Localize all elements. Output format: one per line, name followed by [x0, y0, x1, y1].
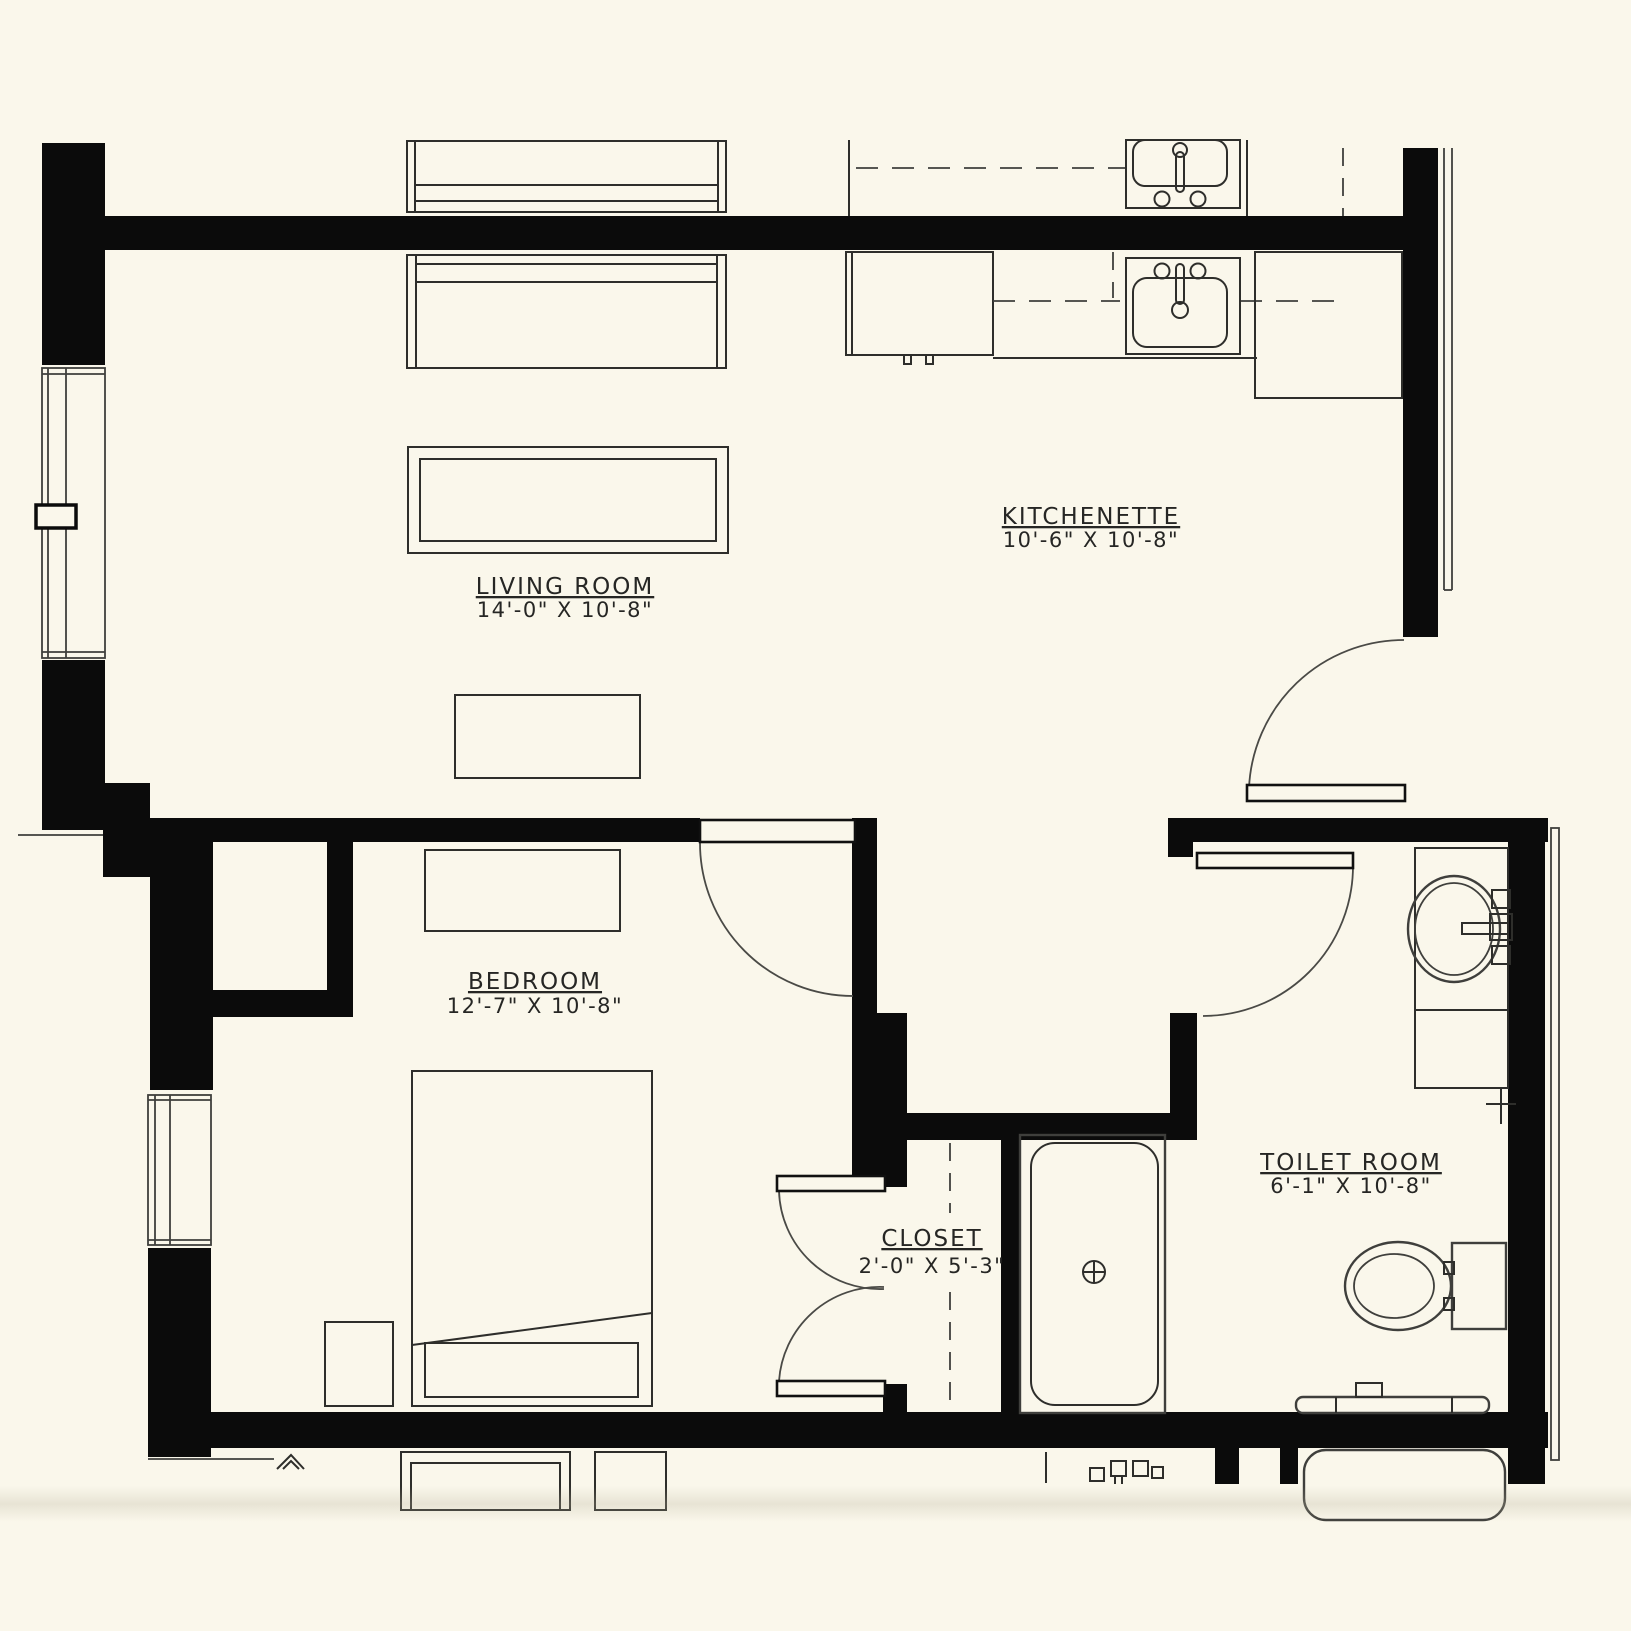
toilet — [1345, 1242, 1506, 1330]
wall-notch-bottom — [213, 990, 353, 1017]
bedroom-dims: 12'-7" X 10'-8" — [447, 994, 623, 1018]
wall-right-toilet — [1508, 818, 1545, 1484]
kitchenette-dims: 10'-6" X 10'-8" — [1003, 528, 1179, 552]
toilet-room-door — [1197, 853, 1353, 1016]
wall-closet-left — [852, 1013, 907, 1187]
wall-right-kitchen — [1403, 148, 1438, 637]
bed — [412, 1071, 652, 1406]
dishwasher — [846, 252, 993, 364]
room-labels: LIVING ROOM 14'-0" X 10'-8" KITCHENETTE … — [447, 504, 1442, 1278]
floor-plan: LIVING ROOM 14'-0" X 10'-8" KITCHENETTE … — [0, 0, 1631, 1631]
wall-bottom-band — [211, 1412, 1548, 1448]
wall-left-upper — [42, 143, 105, 365]
wall-hall-top — [1168, 818, 1548, 842]
exterior-trim — [18, 148, 1559, 1460]
window-mullion — [36, 505, 76, 528]
wall-top-band — [42, 216, 1403, 250]
toilet-room-dims: 6'-1" X 10'-8" — [1270, 1174, 1432, 1198]
living-room-dims: 14'-0" X 10'-8" — [477, 598, 653, 622]
wall-notch-top — [150, 842, 213, 877]
bedroom-door — [700, 820, 855, 996]
vanity-cabinet — [1415, 1010, 1516, 1124]
wall-left-mid — [42, 660, 105, 830]
bookshelf — [407, 141, 726, 212]
shower — [1020, 1135, 1165, 1413]
kitchen-counter-upper — [849, 140, 1343, 216]
bifold-chevron-icon — [277, 1455, 304, 1469]
dresser — [425, 850, 620, 931]
wall-stub-below-1 — [1215, 1448, 1239, 1484]
closet-double-doors — [777, 1176, 885, 1396]
wall-bedroom-left-col — [150, 877, 213, 1090]
kitchen-sink-upper — [1126, 140, 1240, 208]
nightstand — [325, 1322, 393, 1406]
entry-door — [1247, 640, 1405, 801]
closet-dims: 2'-0" X 5'-3" — [859, 1254, 1006, 1278]
kitchen-sink — [1126, 258, 1240, 354]
wall-bedroom-left-lower — [148, 1248, 211, 1457]
walls — [42, 143, 1548, 1484]
living-room-label: LIVING ROOM — [476, 574, 655, 600]
closet-label: CLOSET — [881, 1226, 982, 1252]
sofa — [407, 255, 726, 368]
refrigerator — [1255, 252, 1402, 398]
coffee-table — [408, 447, 728, 553]
toilet-room-label: TOILET ROOM — [1259, 1150, 1442, 1176]
page-edge-shadow — [0, 1486, 1631, 1522]
bedroom-window — [148, 1095, 211, 1245]
kitchen-counter — [993, 252, 1340, 358]
tv-console — [455, 695, 640, 778]
kitchenette-label: KITCHENETTE — [1002, 504, 1180, 530]
wall-stub-below-2 — [1280, 1448, 1298, 1484]
bedroom-label: BEDROOM — [468, 969, 602, 995]
wall-closet-left-stub — [883, 1384, 907, 1412]
wall-bedroom-top — [103, 818, 700, 842]
vanity-sink — [1408, 848, 1512, 1010]
wall-bedroom-door-stub — [852, 818, 877, 1013]
living-room-window — [36, 368, 105, 658]
grab-bar — [1296, 1383, 1489, 1413]
electrical-symbols — [1046, 1452, 1163, 1484]
wall-toilet-door-stub-bottom — [1170, 1013, 1197, 1140]
